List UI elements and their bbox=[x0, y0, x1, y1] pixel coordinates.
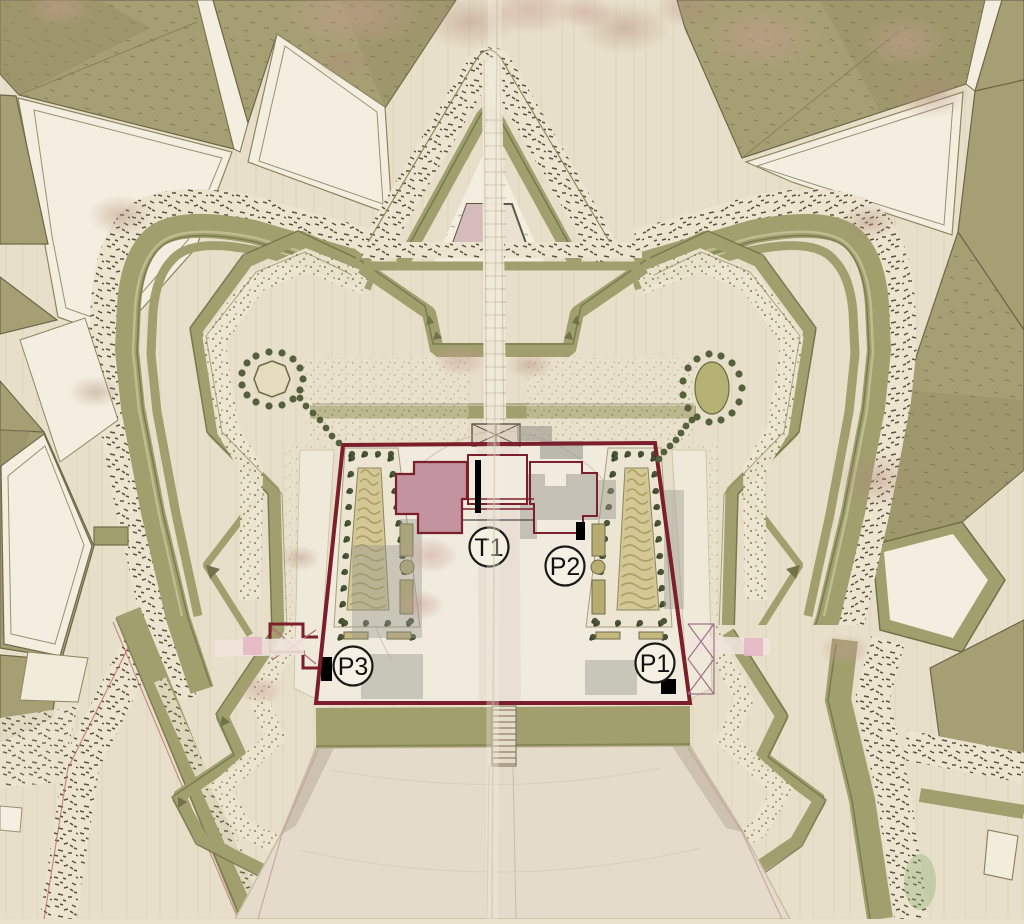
svg-text:P2: P2 bbox=[550, 553, 581, 581]
svg-text:P3: P3 bbox=[338, 653, 369, 681]
svg-text:P1: P1 bbox=[640, 650, 671, 678]
